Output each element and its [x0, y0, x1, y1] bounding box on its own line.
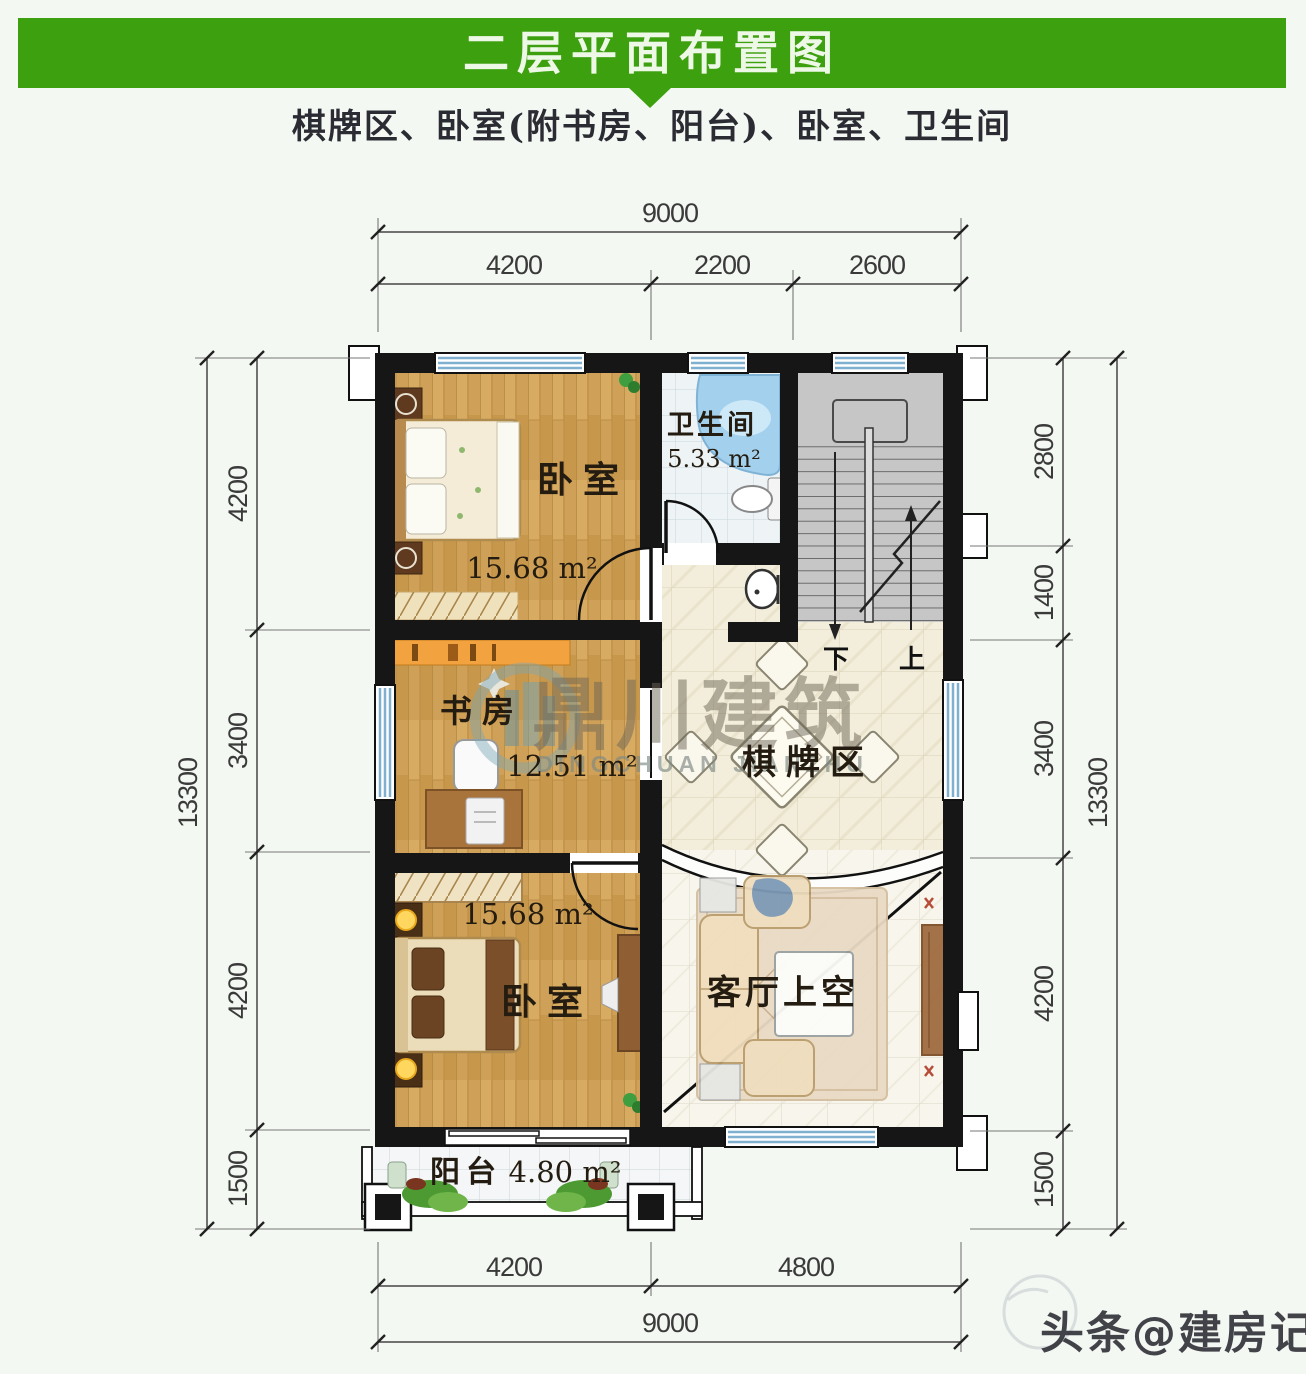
wall-stair-stub — [728, 622, 798, 642]
bedroom-bottom-label: 卧室 — [501, 981, 593, 1023]
pier-tab — [349, 346, 379, 400]
bathroom-area: 5.33 m² — [667, 445, 760, 473]
study-label: 书房 — [440, 692, 524, 730]
sliding-door-leaf — [449, 1131, 539, 1136]
book — [448, 644, 458, 661]
hall-fixtures — [746, 570, 778, 608]
window-top-bedroom — [435, 353, 585, 373]
stair-center-rail — [865, 428, 873, 622]
window-top-bathroom — [688, 353, 748, 373]
bed-pattern-dot — [475, 487, 481, 493]
window-left-study — [375, 685, 395, 800]
armchair — [744, 1040, 814, 1096]
stair-up-label: 上 — [899, 645, 925, 675]
balcony-column — [628, 1184, 674, 1230]
dim-bottom-overall: 9000 — [642, 1308, 698, 1338]
bedroom-bottom-area: 15.68 m² — [462, 897, 593, 931]
window-right-game — [943, 680, 963, 800]
page-header: 二层平面布置图 棋牌区、卧室(附书房、阳台)、卧室、卫生间 — [18, 18, 1286, 147]
lamp-glow — [396, 910, 416, 930]
exterior-box — [958, 992, 978, 1050]
pillow — [406, 428, 446, 478]
page-subtitle: 棋牌区、卧室(附书房、阳台)、卧室、卫生间 — [292, 107, 1012, 147]
floorplan-page: 二层平面布置图 棋牌区、卧室(附书房、阳台)、卧室、卫生间 — [0, 0, 1306, 1374]
dim-bottom-seg1: 4200 — [486, 1252, 542, 1282]
bookshelf — [392, 640, 570, 665]
bathroom-label: 卫生间 — [667, 410, 757, 441]
dim-right-seg1: 2800 — [1029, 424, 1059, 480]
dimensions-top: 9000 4200 2200 2600 — [371, 198, 968, 340]
footer-watermark-text: 头条@建房记 — [1040, 1308, 1306, 1359]
side-table — [700, 878, 736, 912]
game-area-label: 棋牌区 — [742, 743, 874, 783]
header-notch — [628, 87, 672, 108]
dimensions-right: 2800 1400 3400 4200 1500 13300 — [970, 351, 1127, 1236]
study-area: 12.51 m² — [506, 749, 637, 783]
window-top-stairs — [832, 353, 908, 373]
wall-bathroom-stairs — [780, 373, 798, 642]
stair-treads-left — [798, 445, 865, 622]
dim-top-seg1: 4200 — [486, 250, 542, 280]
dimensions-bottom: 4200 4800 9000 — [371, 1242, 968, 1352]
bedroom-top-area: 15.68 m² — [466, 551, 597, 585]
pillow — [406, 484, 446, 534]
book — [412, 644, 418, 661]
page-title: 二层平面布置图 — [463, 26, 841, 80]
living-void-label: 客厅上空 — [707, 973, 859, 1013]
book — [492, 644, 496, 661]
dimensions-left: 13300 4200 3400 4200 1500 — [173, 351, 370, 1236]
dim-top-overall: 9000 — [642, 198, 698, 228]
sliding-door-leaf — [536, 1138, 626, 1143]
dim-top-seg2: 2200 — [694, 250, 750, 280]
door-opening — [664, 543, 716, 565]
pillow-dark — [412, 996, 444, 1038]
dim-right-seg3: 3400 — [1029, 721, 1059, 777]
window-bottom-living — [725, 1127, 878, 1147]
balcony-area: 4.80 m² — [509, 1155, 622, 1189]
balcony-label: 阳台 — [430, 1155, 502, 1190]
bed-duvet-fold — [497, 422, 519, 538]
dim-left-seg4: 1500 — [223, 1151, 253, 1207]
lamp-glow — [396, 1059, 416, 1079]
dim-bottom-seg2: 4800 — [778, 1252, 834, 1282]
dim-top-seg3: 2600 — [849, 250, 905, 280]
washbasin-drain — [755, 590, 760, 595]
book — [470, 644, 476, 661]
washbasin — [746, 570, 778, 608]
dim-right-seg4: 4200 — [1029, 966, 1059, 1022]
wall-bathroom-bottom — [640, 543, 798, 565]
dim-left-seg3: 4200 — [223, 963, 253, 1019]
bed-pattern-dot — [457, 513, 463, 519]
footer-logo-sketch-curve — [1008, 1289, 1048, 1300]
dim-left-overall: 13300 — [173, 758, 203, 828]
dim-right-overall: 13300 — [1083, 758, 1113, 828]
dim-left-seg2: 3400 — [223, 713, 253, 769]
bedroom-top-label: 卧室 — [537, 459, 629, 501]
stair-treads-right — [873, 445, 943, 622]
floorplan-drawing: 二层平面布置图 棋牌区、卧室(附书房、阳台)、卧室、卫生间 — [0, 0, 1306, 1374]
wall-bedroom-study — [375, 620, 662, 640]
dim-right-seg2: 1400 — [1029, 565, 1059, 621]
side-table — [700, 1064, 740, 1100]
bed-pattern-dot — [459, 447, 465, 453]
tv-cabinet — [618, 935, 642, 1051]
dim-left-seg1: 4200 — [223, 466, 253, 522]
bedside-mat-hatch — [390, 592, 518, 620]
toilet-bowl — [732, 486, 772, 512]
pillow-dark — [412, 948, 444, 990]
dim-right-seg5: 1500 — [1029, 1152, 1059, 1208]
footer-watermark: 头条@建房记 — [1004, 1276, 1306, 1359]
